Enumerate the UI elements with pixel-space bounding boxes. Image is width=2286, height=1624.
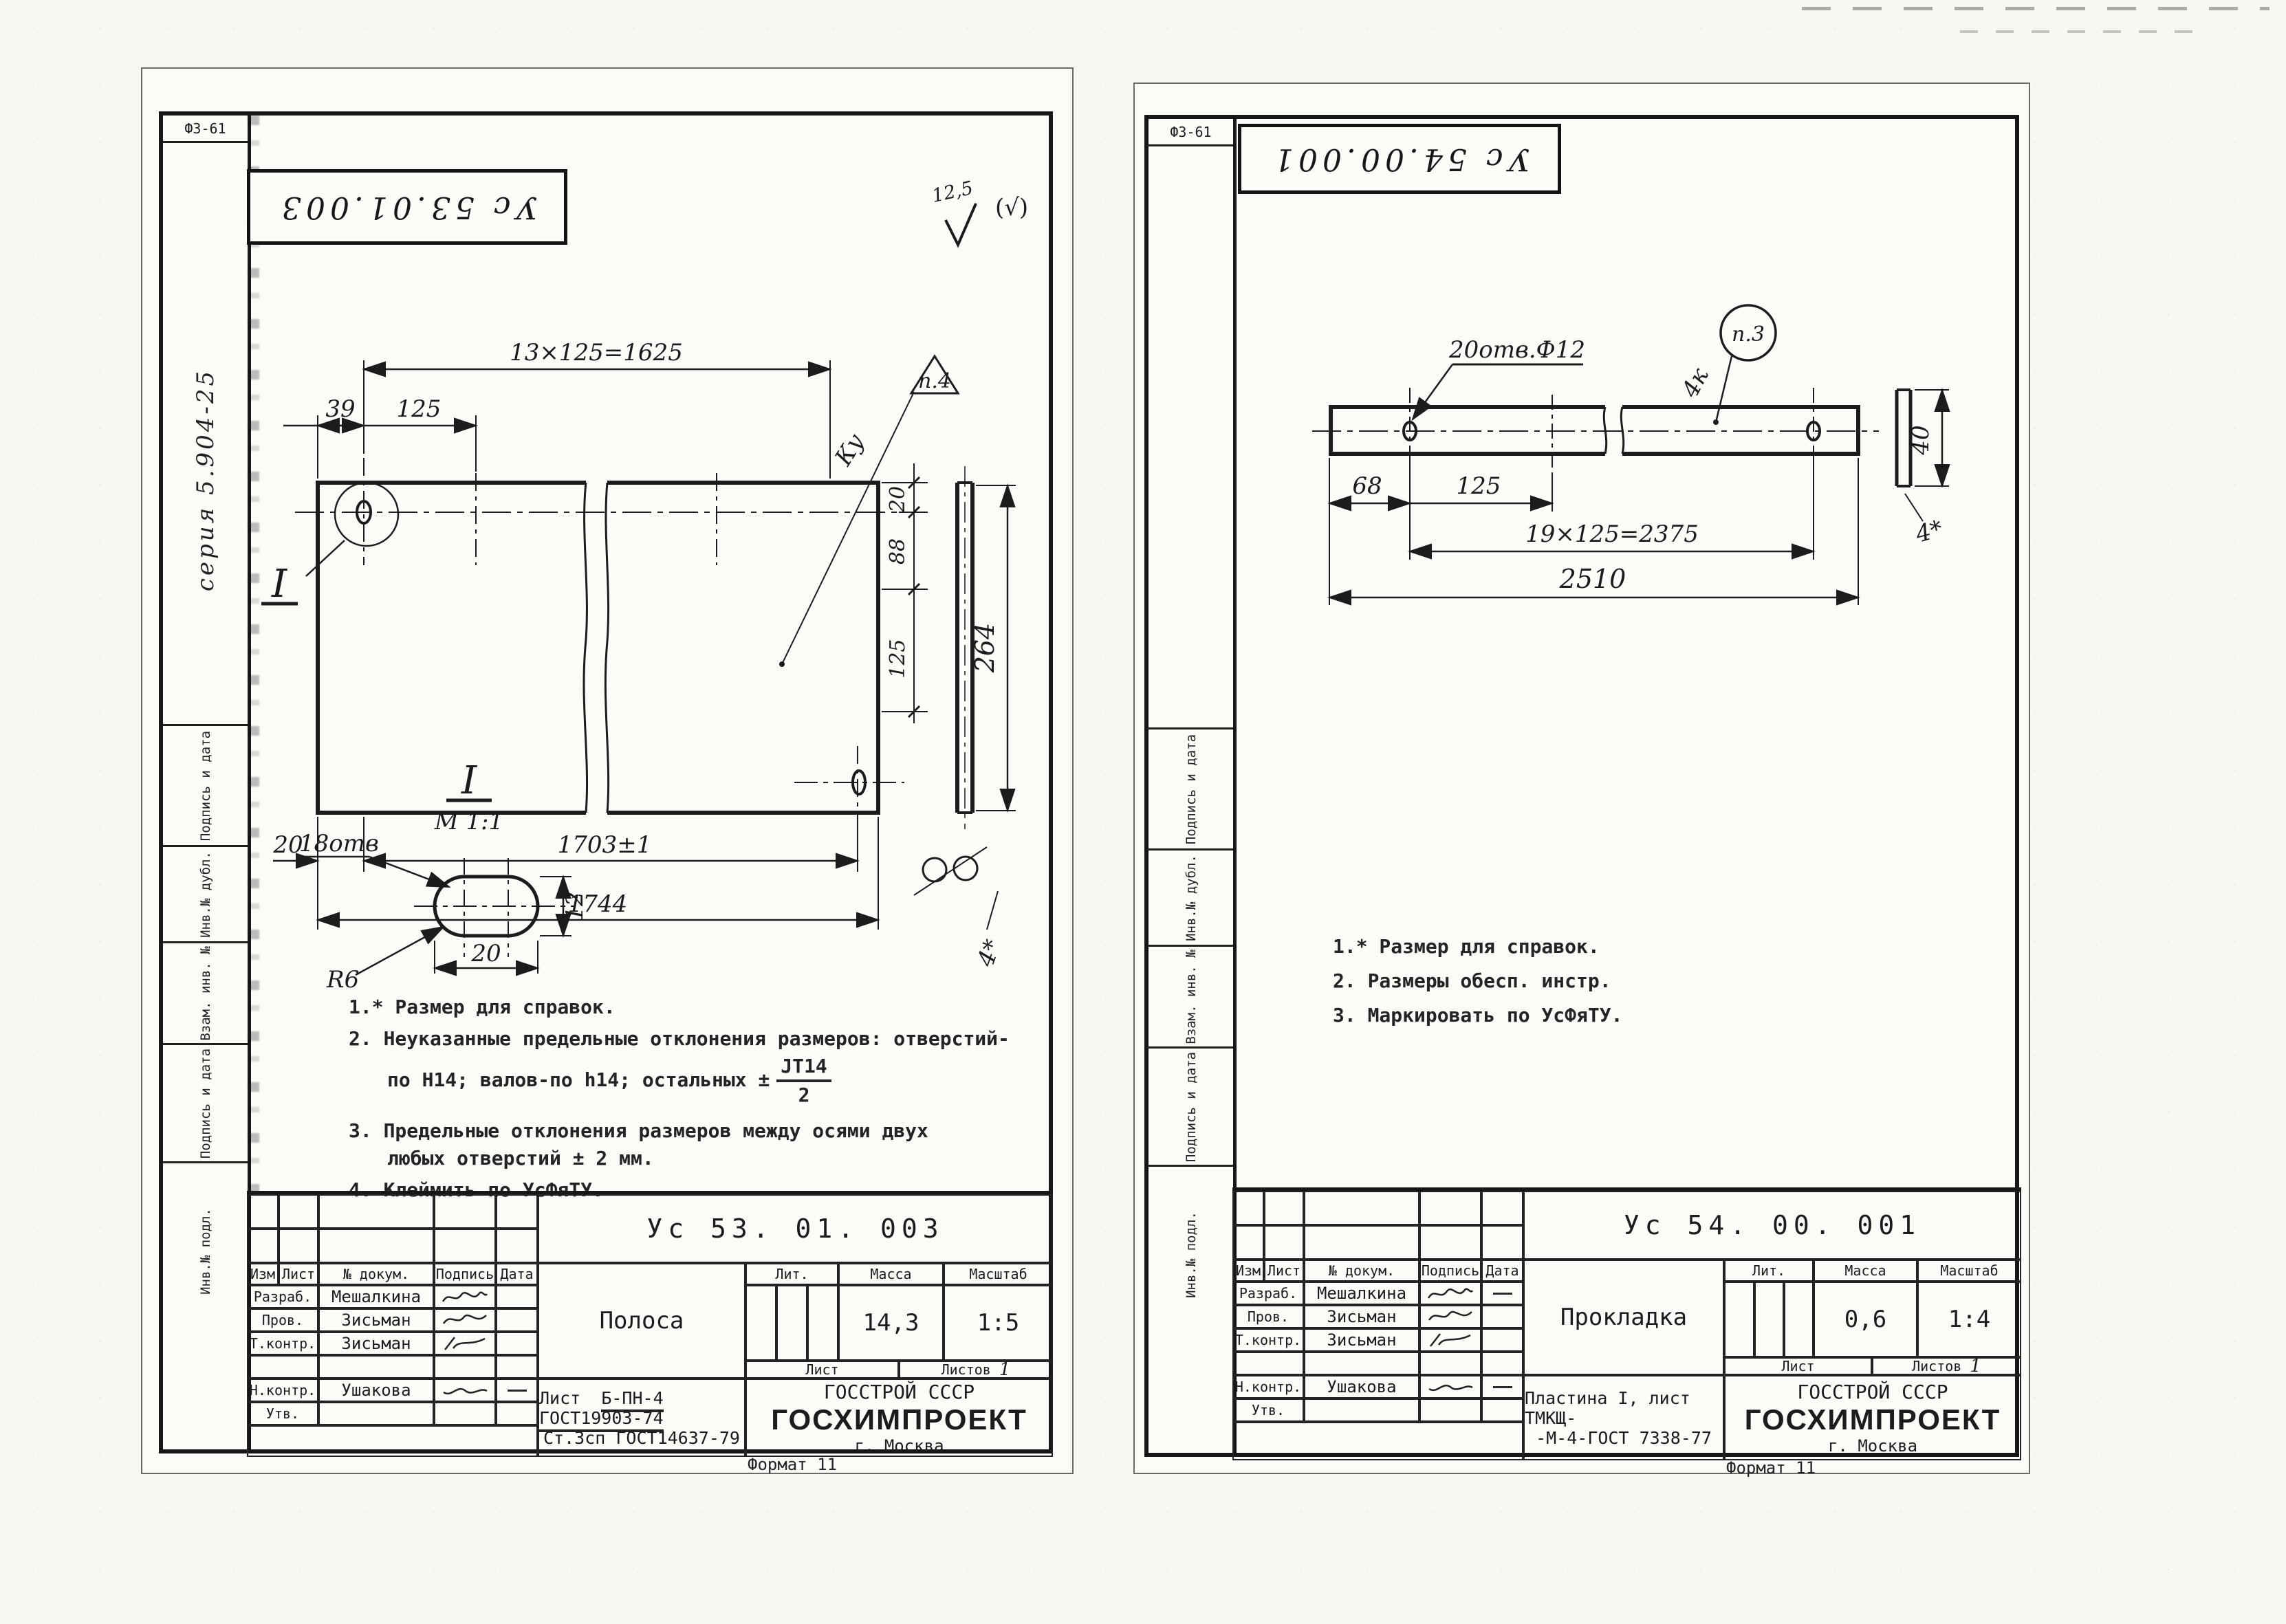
empty-cell — [279, 1229, 318, 1263]
tb-list-label: Лист — [745, 1361, 899, 1379]
empty-cell — [1419, 1225, 1481, 1260]
empty-cell — [1481, 1191, 1523, 1225]
flag-p4: п.4 — [918, 369, 951, 393]
tb-mass-value: 14,3 — [838, 1285, 944, 1361]
empty-cell — [1481, 1225, 1523, 1260]
signature — [441, 1311, 489, 1329]
material-line1: Пластина I, лист ТМКЩ- — [1525, 1388, 1723, 1428]
empty-cell — [1419, 1352, 1481, 1375]
tb-role: Т.контр. — [1232, 1328, 1304, 1352]
tb-col-list: Лист — [279, 1263, 318, 1285]
empty-cell — [496, 1402, 538, 1425]
empty-cell — [745, 1285, 776, 1361]
tb-col-izm: Изм — [247, 1263, 279, 1285]
empty-cell — [434, 1355, 496, 1379]
tb-date-cell — [1481, 1282, 1523, 1305]
signature — [1426, 1331, 1474, 1349]
scan-artifact — [1960, 30, 2194, 33]
tb-signature-cell — [434, 1379, 496, 1402]
title-block-right: Ус 54. 00. 001 Изм Лист № докум. Подпись… — [1232, 1187, 2021, 1460]
tb-name: Зисьман — [1304, 1305, 1419, 1328]
tb-role: Н.контр. — [1232, 1375, 1304, 1398]
empty-cell — [434, 1229, 496, 1263]
empty-cell — [1232, 1191, 1264, 1225]
empty-cell — [1304, 1398, 1419, 1422]
signature — [441, 1288, 489, 1306]
dim-68: 68 — [1352, 472, 1382, 500]
tb-lit-label: Лит. — [1724, 1260, 1814, 1282]
detail-scale: М 1:1 — [434, 808, 503, 835]
tb-signature-cell — [1419, 1375, 1481, 1398]
note-text: по Н14; валов-по h14; остальных ± — [387, 1068, 770, 1091]
empty-cell — [247, 1355, 318, 1379]
tb-date-cell — [496, 1379, 538, 1402]
empty-cell — [434, 1402, 496, 1425]
note-line: любых отверстий ± 2 мм. — [387, 1147, 1043, 1170]
tb-listov-value: 1 — [1970, 1357, 1981, 1375]
tb-col-izm: Изм — [1232, 1260, 1264, 1282]
tb-date-cell — [496, 1285, 538, 1308]
org-line3: г. Москва — [854, 1436, 944, 1456]
tb-role: Разраб. — [1232, 1282, 1304, 1305]
tb-signature-cell — [1419, 1328, 1481, 1352]
change-grid — [247, 1194, 538, 1263]
material-line2: Ст.3сп ГОСТ14637-79 — [543, 1428, 740, 1448]
tb-listov-value: 1 — [999, 1361, 1011, 1379]
tb-date-cell — [496, 1332, 538, 1355]
tb-part-name: Полоса — [538, 1263, 745, 1379]
format-note: Формат 11 — [748, 1455, 837, 1474]
empty-cell — [318, 1355, 434, 1379]
tb-date-cell — [1481, 1305, 1523, 1328]
org-line2: ГОСХИМПРОЕКТ — [771, 1403, 1027, 1436]
date-dash — [1493, 1386, 1512, 1388]
tb-signature-cell — [434, 1285, 496, 1308]
empty-cell — [496, 1194, 538, 1229]
empty-cell — [1481, 1398, 1523, 1422]
dim-125: 125 — [397, 395, 442, 423]
org-line1: ГОССТРОЙ СССР — [824, 1381, 975, 1403]
detail-holes: 18отв — [299, 830, 379, 857]
tb-name: Ушакова — [1304, 1375, 1419, 1398]
dim-v88: 88 — [886, 538, 910, 564]
tb-signature-cell — [434, 1332, 496, 1355]
tb-designation: Ус 54. 00. 001 — [1523, 1191, 2021, 1260]
tb-role: Н.контр. — [247, 1379, 318, 1402]
sheet-left: Ф3-61 серия 5.904-25 Подпись и дата Инв.… — [141, 67, 1074, 1474]
note-line: 2. Неуказанные предельные отклонения раз… — [349, 1027, 1043, 1051]
empty-cell — [807, 1285, 838, 1361]
note-line: 3. Маркировать по УсФяТУ. — [1333, 1004, 1814, 1027]
tb-material: Лист Б-ПН-4 ГОСТ19903-74 Ст.3сп ГОСТ1463… — [538, 1379, 745, 1457]
tb-signature-cell — [434, 1308, 496, 1332]
empty-cell — [247, 1229, 279, 1263]
dim-v20: 20 — [886, 486, 910, 513]
tb-col-date: Дата — [496, 1263, 538, 1285]
tb-designation: Ус 53. 01. 003 — [538, 1194, 1053, 1263]
tb-col-doc: № докум. — [318, 1263, 434, 1285]
tb-listov-cell: Листов 1 — [1872, 1357, 2021, 1375]
empty-cell — [279, 1194, 318, 1229]
notes-left: 1.* Размер для справок. 2. Неуказанные п… — [349, 996, 1043, 1210]
change-grid — [1232, 1191, 1523, 1260]
empty-cell — [1419, 1191, 1481, 1225]
tb-name: Зисьман — [1304, 1328, 1419, 1352]
empty-cell — [496, 1355, 538, 1379]
empty-cell — [318, 1229, 434, 1263]
dim-264: 264 — [970, 623, 1000, 674]
empty-cell — [1481, 1352, 1523, 1375]
tb-role: Утв. — [247, 1402, 318, 1425]
empty-cell — [1232, 1225, 1264, 1260]
signature — [1426, 1378, 1474, 1396]
dim-b20: 20 — [272, 831, 303, 859]
org-line2: ГОСХИМПРОЕКТ — [1745, 1403, 2001, 1436]
org-line3: г. Москва — [1828, 1436, 1917, 1456]
material-line2: -М-4-ГОСТ 7338-77 — [1536, 1428, 1712, 1448]
dim-2510: 2510 — [1559, 564, 1626, 594]
notes-right: 1.* Размер для справок. 2. Размеры обесп… — [1333, 935, 1814, 1035]
dim-40: 40 — [1907, 425, 1935, 455]
tb-role: Т.контр. — [247, 1332, 318, 1355]
tb-mass-value: 0,6 — [1814, 1282, 1917, 1357]
tb-signature-cell — [1419, 1305, 1481, 1328]
tb-listov-label: Листов — [941, 1361, 991, 1378]
dim-125: 125 — [1457, 472, 1501, 500]
signature — [1426, 1284, 1474, 1302]
signature — [441, 1381, 489, 1399]
tb-name: Мешалкина — [1304, 1282, 1419, 1305]
dim-v125: 125 — [886, 639, 910, 678]
org-line1: ГОССТРОЙ СССР — [1797, 1381, 1948, 1403]
empty-cell — [1304, 1191, 1419, 1225]
note-line: по Н14; валов-по h14; остальных ±JT142 — [387, 1055, 1043, 1107]
material-line1: Лист Б-ПН-4 ГОСТ19903-74 — [539, 1388, 744, 1428]
tb-part-name: Прокладка — [1523, 1260, 1724, 1375]
tb-organization: ГОССТРОЙ СССР ГОСХИМПРОЕКТ г. Москва — [745, 1379, 1053, 1457]
dim-39: 39 — [325, 395, 355, 423]
tb-mass-label: Масса — [1814, 1260, 1917, 1282]
signature — [441, 1335, 489, 1352]
empty-cell — [434, 1194, 496, 1229]
tb-scale-label: Масштаб — [944, 1263, 1053, 1285]
empty-cell — [1724, 1282, 1754, 1357]
tb-list-label: Лист — [1724, 1357, 1872, 1375]
scan-artifact — [1802, 7, 2269, 10]
tb-date-cell — [1481, 1375, 1523, 1398]
tb-material: Пластина I, лист ТМКЩ- -М-4-ГОСТ 7338-77 — [1523, 1375, 1724, 1460]
tb-scale-value: 1:4 — [1917, 1282, 2021, 1357]
material-prefix: Лист — [539, 1388, 580, 1408]
tb-col-sign: Подпись — [434, 1263, 496, 1285]
tb-role: Пров. — [247, 1308, 318, 1332]
empty-cell — [1232, 1352, 1304, 1375]
empty-cell — [1232, 1422, 1523, 1460]
tb-organization: ГОССТРОЙ СССР ГОСХИМПРОЕКТ г. Москва — [1724, 1375, 2021, 1460]
tb-lit-label: Лит. — [745, 1263, 838, 1285]
dim-2375: 19×125=2375 — [1525, 520, 1699, 548]
tb-name: Ушакова — [318, 1379, 434, 1402]
fraction-denominator: 2 — [776, 1082, 831, 1107]
tb-role: Пров. — [1232, 1305, 1304, 1328]
empty-cell — [496, 1229, 538, 1263]
detail-dim-h: 12 — [561, 891, 589, 921]
note-line: 1.* Размер для справок. — [1333, 935, 1814, 958]
empty-cell — [318, 1402, 434, 1425]
note-line: 2. Размеры обесп. инстр. — [1333, 969, 1814, 993]
note-line: 3. Предельные отклонения размеров между … — [349, 1119, 1043, 1143]
tb-listov-cell: Листов 1 — [899, 1361, 1053, 1379]
tb-col-sign: Подпись — [1419, 1260, 1481, 1282]
date-dash — [508, 1390, 527, 1392]
fraction-numerator: JT14 — [776, 1055, 831, 1082]
tb-name: Зисьман — [318, 1332, 434, 1355]
empty-cell — [1264, 1191, 1304, 1225]
tb-signature-cell — [1419, 1282, 1481, 1305]
tb-date-cell — [496, 1308, 538, 1332]
dim-thickness: 4* — [972, 936, 1007, 971]
empty-cell — [318, 1194, 434, 1229]
label-4k: 4к — [1676, 363, 1714, 402]
flag-p3: п.3 — [1732, 322, 1765, 347]
format-note: Формат 11 — [1726, 1458, 1816, 1478]
note-line: 1.* Размер для справок. — [349, 996, 1043, 1019]
empty-cell — [1304, 1225, 1419, 1260]
tb-name: Зисьман — [318, 1308, 434, 1332]
tolerance-fraction: JT142 — [776, 1055, 831, 1107]
dim-hole-spacing: 13×125=1625 — [510, 339, 683, 366]
empty-cell — [1754, 1282, 1784, 1357]
tb-scale-label: Масштаб — [1917, 1260, 2021, 1282]
label-ku: Ку — [829, 429, 870, 471]
sheet-right: Ф3-61 Подпись и дата Инв.№ дубл. Взам. и… — [1133, 83, 2030, 1474]
tb-role: Утв. — [1232, 1398, 1304, 1422]
signature — [1426, 1308, 1474, 1326]
empty-cell — [1419, 1398, 1481, 1422]
tb-mass-label: Масса — [838, 1263, 944, 1285]
date-dash — [1493, 1293, 1512, 1295]
tb-scale-value: 1:5 — [944, 1285, 1053, 1361]
tb-date-cell — [1481, 1328, 1523, 1352]
tb-col-list: Лист — [1264, 1260, 1304, 1282]
scanned-drawing-page: 43 Ф3-61 серия 5.904-25 Подпись и дата И… — [0, 0, 2286, 1624]
empty-cell — [247, 1194, 279, 1229]
tb-role: Разраб. — [247, 1285, 318, 1308]
empty-cell — [1264, 1225, 1304, 1260]
dim-thickness: 4* — [1912, 515, 1946, 549]
detail-mark: I — [461, 758, 478, 803]
tb-col-date: Дата — [1481, 1260, 1523, 1282]
empty-cell — [1304, 1352, 1419, 1375]
empty-cell — [776, 1285, 807, 1361]
tb-listov-label: Листов — [1912, 1358, 1961, 1374]
tb-col-doc: № докум. — [1304, 1260, 1419, 1282]
empty-cell — [1784, 1282, 1814, 1357]
section-mark: I — [271, 562, 288, 606]
holes-label: 20отв.Ф12 — [1448, 336, 1585, 364]
tb-name: Мешалкина — [318, 1285, 434, 1308]
empty-cell — [247, 1425, 538, 1457]
detail-radius: R6 — [326, 966, 359, 994]
detail-dim-w: 20 — [470, 940, 501, 967]
dim-1703: 1703±1 — [558, 831, 652, 859]
title-block-left: Ус 53. 01. 003 Изм Лист № докум. Подпись… — [247, 1191, 1053, 1457]
